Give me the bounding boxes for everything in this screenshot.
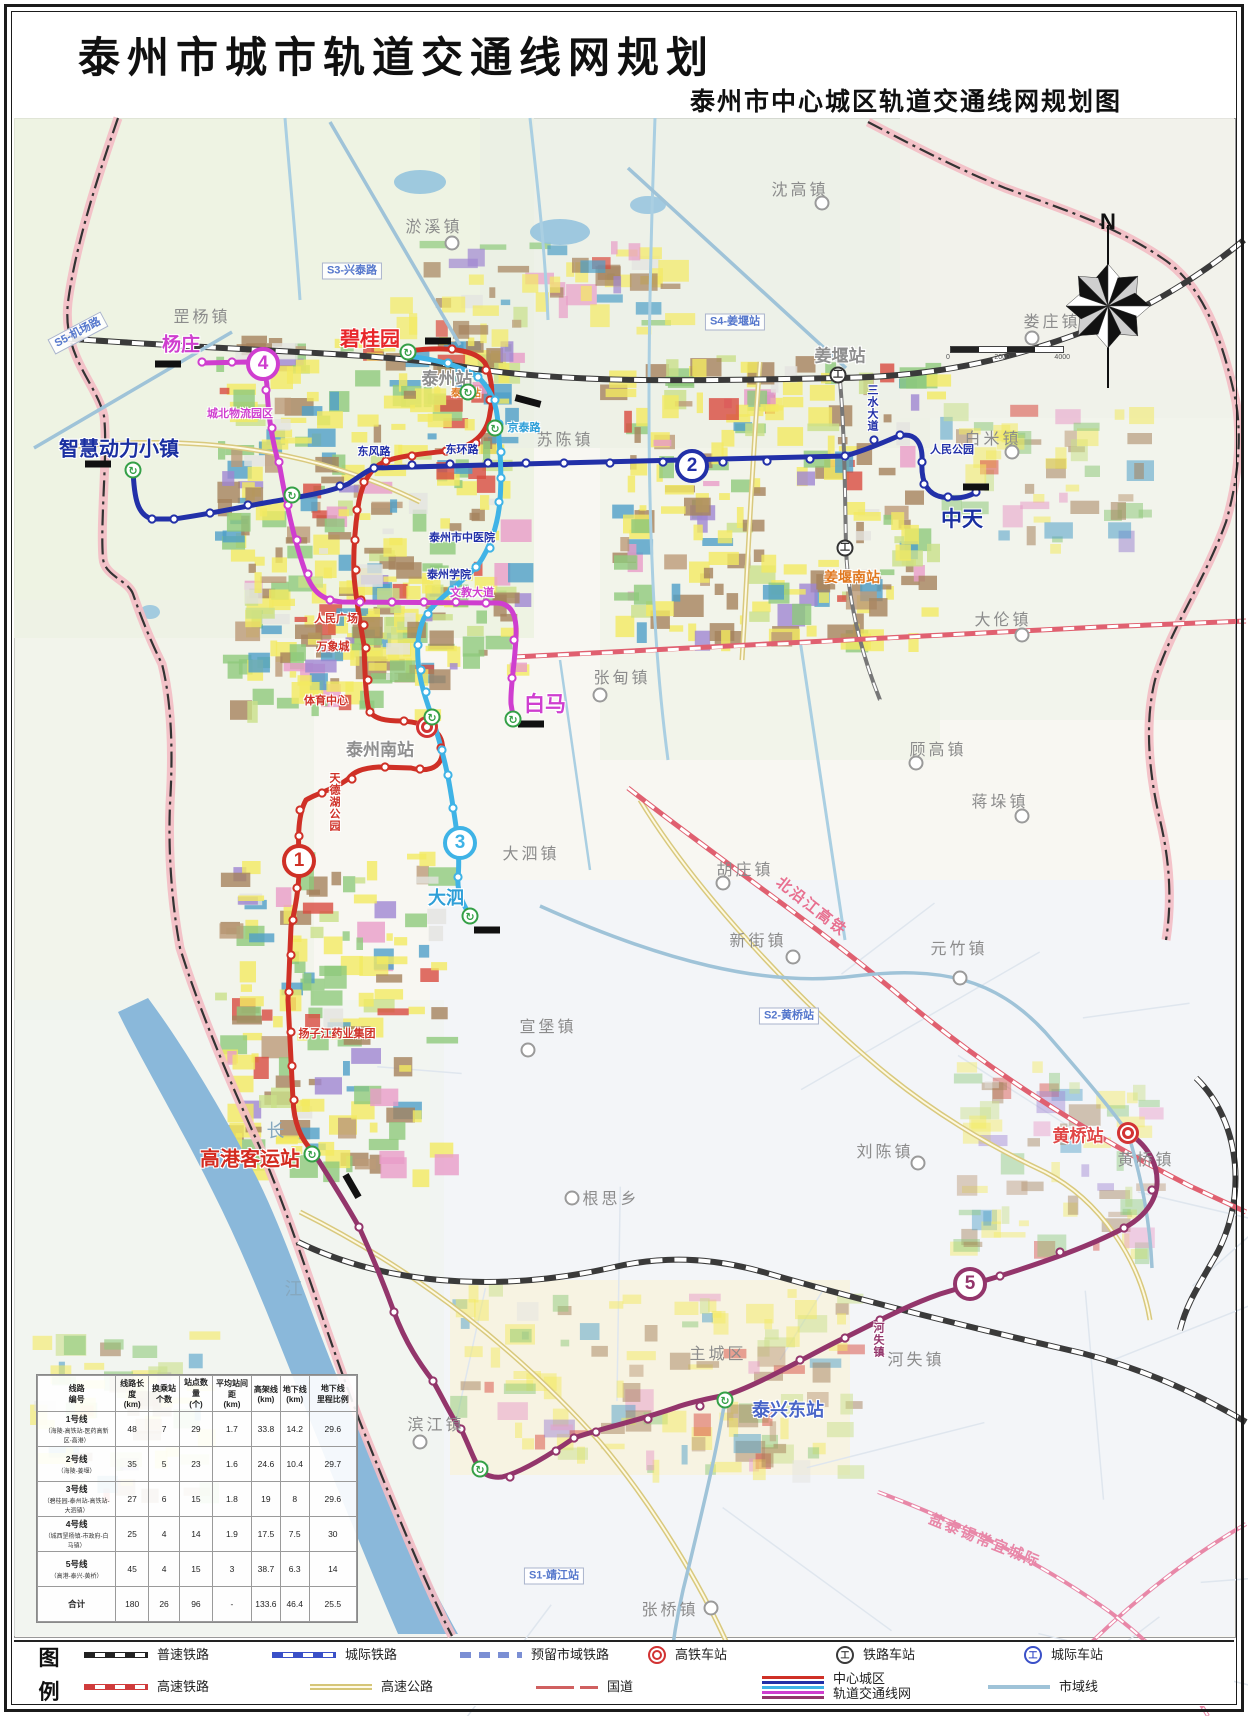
terminal-label: 智慧动力小镇 (59, 433, 179, 462)
value-cell: 180 (116, 1587, 149, 1622)
value-cell: 4 (149, 1552, 180, 1587)
legend-label: 城际车站 (1051, 1648, 1103, 1663)
station-dot (352, 566, 359, 573)
station-dot (491, 396, 498, 403)
legend-row-1: 普速铁路城际铁路预留市域铁路高铁车站工铁路车站工城际车站 (84, 1646, 1234, 1664)
table-header-cell: 换乘站个数 (149, 1376, 180, 1412)
station-dot (198, 358, 205, 365)
town-label: 主城区 (689, 1340, 746, 1364)
town-marker (704, 1601, 719, 1616)
station-dot (390, 1308, 397, 1315)
value-cell: 15 (179, 1482, 212, 1517)
town-marker (1025, 331, 1040, 346)
table-row: 5号线（高港-泰兴-黄桥）45415338.76.314 (38, 1552, 357, 1587)
town-label: 黄桥镇 (1117, 1146, 1174, 1170)
terminal-label: 杨庄 (162, 330, 200, 357)
legend-item: 国道 (536, 1680, 762, 1695)
station-dot (420, 598, 427, 605)
legend-item: 普速铁路 (84, 1648, 272, 1663)
table-header-cell: 线路长度(km) (116, 1376, 149, 1412)
town-marker (909, 756, 924, 771)
suburban-line-label: S1-靖江站 (524, 1568, 584, 1585)
station-dot (486, 544, 493, 551)
value-cell: 29 (179, 1412, 212, 1447)
station-label: 文教大道 (450, 584, 494, 600)
legend-label: 铁路车站 (863, 1648, 915, 1663)
station-dot (288, 1062, 295, 1069)
legend-title: 图 例 (14, 1642, 84, 1706)
station-dot (355, 1223, 362, 1230)
station-dot (659, 458, 666, 465)
station-dot (364, 676, 371, 683)
station-label: 体育中心 (304, 692, 348, 708)
legend-label: 高速公路 (381, 1680, 433, 1695)
station-dot (495, 498, 502, 505)
station-label: 东环路 (446, 441, 479, 457)
station-label: 城北物流园区 (207, 405, 273, 421)
legend-label: 城际铁路 (345, 1648, 397, 1663)
town-label: 元竹镇 (930, 935, 987, 959)
table-row: 合计1802696-133.646.425.5 (38, 1587, 357, 1622)
value-cell: 7.5 (280, 1517, 309, 1552)
station-dot (429, 1377, 436, 1384)
town-label: 宣堡镇 (519, 1013, 576, 1037)
legend-label: 中心城区 轨道交通线网 (833, 1672, 911, 1702)
transfer-station-icon: ↻ (462, 908, 479, 925)
legend-item: 工铁路车站 (836, 1646, 1024, 1664)
st-blue-legend-symbol: 工 (1024, 1646, 1042, 1664)
station-label: 京泰路 (508, 419, 541, 435)
line-number-badge: 1 (282, 844, 316, 878)
value-cell: 7 (149, 1412, 180, 1447)
station-dot (348, 775, 355, 782)
terminal-tick (518, 721, 544, 728)
legend-label: 高铁车站 (675, 1648, 727, 1663)
station-dot (422, 688, 429, 695)
town-label: 娄庄镇 (1023, 308, 1080, 332)
value-cell: 26 (149, 1587, 180, 1622)
station-dot (1056, 1248, 1063, 1255)
town-marker (1015, 628, 1030, 643)
terminal-label: 姜堰站 (815, 342, 866, 367)
terminal-tick (425, 338, 451, 345)
station-dot (351, 536, 358, 543)
terminal-label: 中天 (941, 503, 983, 533)
value-cell: 38.7 (252, 1552, 281, 1587)
value-cell: 46.4 (280, 1587, 309, 1622)
town-marker (786, 950, 801, 965)
line-name-cell: 5号线（高港-泰兴-黄桥） (38, 1552, 116, 1587)
table-header-cell: 地下线里程比例 (309, 1376, 356, 1412)
station-dot (1148, 1186, 1155, 1193)
station-label: 人民广场 (314, 610, 358, 626)
station-dot (414, 641, 421, 648)
station-dot (275, 458, 282, 465)
legend-row-2: 高速铁路高速公路国道中心城区 轨道交通线网市域线 (84, 1672, 1234, 1702)
station-dot (381, 763, 388, 770)
line-name-cell: 2号线（海陵-姜堰） (38, 1447, 116, 1482)
terminal-label: 泰兴东站 (752, 1396, 824, 1422)
station-dot (148, 515, 155, 522)
station-dot (920, 480, 927, 487)
value-cell: 8 (280, 1482, 309, 1517)
station-dot (438, 746, 445, 753)
station-dot (360, 478, 367, 485)
rail-black-legend-symbol (84, 1652, 148, 1658)
value-cell: 1.9 (212, 1517, 251, 1552)
terminal-label: 姜堰南站 (824, 567, 880, 587)
town-label: 大泗镇 (502, 840, 559, 864)
road-red-legend-symbol (536, 1686, 598, 1689)
station-dot (644, 1415, 651, 1422)
town-label: 刘陈镇 (856, 1138, 913, 1162)
terminal-label: 白马 (524, 688, 566, 718)
legend-item: 高铁车站 (648, 1646, 836, 1664)
town-marker (953, 971, 968, 986)
station-dot (918, 458, 925, 465)
value-cell: 35 (116, 1447, 149, 1482)
station-dot (170, 515, 177, 522)
legend-item: 城际铁路 (272, 1648, 460, 1663)
terminal-label: 泰州南站 (346, 736, 414, 761)
legend-label: 高速铁路 (157, 1680, 209, 1695)
value-cell: 133.6 (252, 1587, 281, 1622)
station-dot (262, 386, 269, 393)
legend-item: 工城际车站 (1024, 1646, 1212, 1664)
value-cell: 6.3 (280, 1552, 309, 1587)
value-cell: 30 (309, 1517, 356, 1552)
rail-blue-legend-symbol (272, 1652, 336, 1658)
value-cell: 45 (116, 1552, 149, 1587)
station-dot (484, 459, 491, 466)
terminal-tick (963, 484, 989, 491)
station-dot (444, 771, 451, 778)
terminal-tick (85, 461, 111, 468)
town-label: 罡杨镇 (173, 303, 230, 327)
line-statistics-table: 线路编号线路长度(km)换乘站个数站点数量(个)平均站间距(km)高架线(km)… (36, 1374, 358, 1623)
transfer-station-icon: ↻ (472, 1461, 489, 1478)
legend-item: 预留市域铁路 (460, 1648, 648, 1663)
station-dot (287, 951, 294, 958)
station-dot (474, 373, 481, 380)
town-marker (1005, 445, 1020, 460)
station-dot (606, 459, 613, 466)
station-label: 万象城 (317, 638, 350, 654)
station-dot (289, 916, 296, 923)
station-dot (522, 459, 529, 466)
station-dot (285, 988, 292, 995)
scale-tick: 2000 (994, 354, 1010, 361)
value-cell: 23 (179, 1447, 212, 1482)
station-label: 扬子江药业集团 (299, 1025, 376, 1041)
value-cell: 4 (149, 1517, 180, 1552)
river-label: 长 (267, 1117, 288, 1143)
legend-char: 图 (39, 1642, 60, 1672)
value-cell: 14.2 (280, 1412, 309, 1447)
table-row: 2号线（海陵-姜堰）355231.624.610.429.7 (38, 1447, 357, 1482)
legend-item: 市域线 (988, 1680, 1214, 1695)
transfer-station-icon: ↻ (487, 420, 504, 437)
transfer-station-icon: ↻ (125, 462, 142, 479)
station-dot (696, 1402, 703, 1409)
station-dot (360, 621, 367, 628)
value-cell: 29.6 (309, 1482, 356, 1517)
value-cell: 5 (149, 1447, 180, 1482)
station-dot (362, 644, 369, 651)
station-label: 河失镇 (870, 1322, 886, 1358)
town-marker (413, 1435, 428, 1450)
transfer-station-icon: ↻ (304, 1146, 321, 1163)
legend-label: 普速铁路 (157, 1648, 209, 1663)
station-dot (400, 717, 407, 724)
suburban-line-label: S3-兴泰路 (322, 263, 382, 280)
terminal-label: 碧桂园 (340, 323, 400, 352)
table-header-cell: 地下线(km) (280, 1376, 309, 1412)
scale-tick: 4000 (1054, 354, 1070, 361)
town-label: 张桥镇 (641, 1596, 698, 1620)
station-dot (304, 570, 311, 577)
line-lblue-legend-symbol (988, 1685, 1050, 1689)
value-cell: 3 (212, 1552, 251, 1587)
station-dot (268, 424, 275, 431)
terminal-label: 高港客运站 (200, 1143, 300, 1172)
station-dot (206, 509, 213, 516)
station-dot (448, 345, 455, 352)
transfer-station-icon: ↻ (505, 711, 522, 728)
station-dot (592, 1428, 599, 1435)
station-dot (408, 452, 415, 459)
station-dot (287, 1028, 294, 1035)
value-cell: 33.8 (252, 1412, 281, 1447)
town-marker (521, 1043, 536, 1058)
town-label: 大伦镇 (974, 606, 1031, 630)
station-dot (293, 536, 300, 543)
suburban-line-label: S2-黄桥站 (759, 1008, 819, 1025)
table-row: 4号线（城西罡杨镇-市政府-白马镇）254141.917.57.530 (38, 1517, 357, 1552)
transfer-station-icon: ↻ (424, 709, 441, 726)
legend-label: 预留市域铁路 (531, 1648, 609, 1663)
table-header-cell: 站点数量(个) (179, 1376, 212, 1412)
town-label: 滨江镇 (407, 1411, 464, 1435)
station-dot (806, 455, 813, 462)
station-dot (449, 804, 456, 811)
station-dot (366, 708, 373, 715)
station-dot (244, 501, 251, 508)
town-marker (815, 196, 830, 211)
value-cell: 29.7 (309, 1447, 356, 1482)
town-marker (565, 1191, 580, 1206)
station-dot (944, 493, 951, 500)
town-marker (445, 236, 460, 251)
line-name-cell: 合计 (38, 1587, 116, 1622)
station-dot (370, 464, 377, 471)
town-marker (593, 688, 608, 703)
value-cell: - (212, 1587, 251, 1622)
station-dot (497, 474, 504, 481)
station-dot (482, 366, 489, 373)
line-name-cell: 1号线（海陵-高铁站-医药高新区-高港） (38, 1412, 116, 1447)
station-dot (719, 458, 726, 465)
value-cell: 14 (179, 1517, 212, 1552)
value-cell: 17.5 (252, 1517, 281, 1552)
station-dot (336, 482, 343, 489)
line-name-cell: 4号线（城西罡杨镇-市政府-白马镇） (38, 1517, 116, 1552)
station-dot (570, 1434, 577, 1441)
town-label: 根思乡 (582, 1185, 639, 1209)
value-cell: 1.6 (212, 1447, 251, 1482)
station-dot (472, 563, 479, 570)
station-dot (996, 1272, 1003, 1279)
table-header-cell: 线路编号 (38, 1376, 116, 1412)
station-dot (560, 459, 567, 466)
compass-north-label: N (1100, 209, 1116, 235)
station-dot (506, 1473, 513, 1480)
value-cell: 1.7 (212, 1412, 251, 1447)
value-cell: 14 (309, 1552, 356, 1587)
line-number-badge: 5 (953, 1267, 987, 1301)
value-cell: 27 (116, 1482, 149, 1517)
station-dot (353, 506, 360, 513)
terminal-tick (474, 927, 500, 934)
town-label: 苏陈镇 (536, 426, 593, 450)
value-cell: 1.8 (212, 1482, 251, 1517)
station-dot (841, 1334, 848, 1341)
station-label: 天德湖公园 (326, 772, 342, 832)
town-label: 新街镇 (729, 927, 786, 951)
station-dot (870, 436, 877, 443)
value-cell: 29.6 (309, 1412, 356, 1447)
station-dot (1120, 1224, 1127, 1231)
station-dot (290, 1096, 297, 1103)
town-label: 河失镇 (887, 1346, 944, 1370)
transfer-station-icon: ↻ (717, 1392, 734, 1409)
legend-label: 市域线 (1059, 1680, 1098, 1695)
station-dot (796, 1356, 803, 1363)
station-dot (228, 358, 235, 365)
station-label: 人民公园 (930, 441, 974, 457)
station-dot (896, 431, 903, 438)
line-number-badge: 2 (675, 449, 709, 483)
value-cell: 15 (179, 1552, 212, 1587)
town-label: 淤溪镇 (405, 213, 462, 237)
station-dot (326, 596, 333, 603)
station-dot (295, 832, 302, 839)
town-marker (1015, 809, 1030, 824)
value-cell: 48 (116, 1412, 149, 1447)
value-cell: 19 (252, 1482, 281, 1517)
table-header-cell: 平均站间距(km) (212, 1376, 251, 1412)
town-marker (716, 876, 731, 891)
road-yellow-legend-symbol (310, 1684, 372, 1690)
station-dot (318, 789, 325, 796)
scale-tick-labels: 0 2000 4000 (946, 354, 1070, 361)
station-dot (552, 1447, 559, 1454)
station-dot (497, 448, 504, 455)
station-dot (424, 610, 431, 617)
station-label: 泰州学院 (427, 566, 471, 582)
station-dot (408, 461, 415, 468)
line-number-badge: 4 (246, 347, 280, 381)
station-dot (388, 598, 395, 605)
river-label: 江 (285, 1275, 306, 1301)
table-header-cell: 高架线(km) (252, 1376, 281, 1412)
station-dot (841, 452, 848, 459)
value-cell: 25 (116, 1517, 149, 1552)
station-dot (416, 765, 423, 772)
transfer-station-icon: ↻ (400, 344, 417, 361)
station-dot (356, 598, 363, 605)
dash-blue-legend-symbol (460, 1652, 522, 1658)
hsr-station-icon (1117, 1122, 1139, 1144)
legend-item: 高速公路 (310, 1680, 536, 1695)
station-dot (508, 674, 515, 681)
legend-item: 高速铁路 (84, 1680, 310, 1695)
value-cell: 25.5 (309, 1587, 356, 1622)
terminal-tick (155, 361, 181, 368)
terminal-label: 黄桥站 (1053, 1122, 1104, 1147)
scale-bar (950, 346, 1064, 353)
station-dot (446, 460, 453, 467)
station-label: 三水大道 (864, 384, 880, 432)
line-name-cell: 3号线（碧桂园-泰州站-高铁站-大泗镇） (38, 1482, 116, 1517)
station-label: 泰州市中医院 (429, 529, 495, 545)
scale-tick: 0 (946, 354, 950, 361)
line-number-badge: 3 (443, 826, 477, 860)
transfer-station-icon: ↻ (284, 487, 301, 504)
st-red-legend-symbol (648, 1646, 666, 1664)
map-document: 罡杨镇淤溪镇沈高镇娄庄镇白米镇苏陈镇大伦镇张甸镇顾高镇蒋垛镇大泗镇胡庄镇新街镇元… (0, 0, 1248, 1716)
station-dot (296, 806, 303, 813)
station-dot (510, 636, 517, 643)
transfer-station-icon: ↻ (460, 384, 477, 401)
value-cell: 6 (149, 1482, 180, 1517)
station-dot (454, 873, 461, 880)
st-dark-legend-symbol: 工 (836, 1646, 854, 1664)
metro-multi-legend-symbol (762, 1676, 824, 1699)
map-legend: 图 例 普速铁路城际铁路预留市域铁路高铁车站工铁路车站工城际车站 高速铁路高速公… (14, 1640, 1234, 1706)
station-label: 东风路 (358, 443, 391, 459)
terminal-label: 大泗 (428, 884, 464, 910)
table-row: 3号线（碧桂园-泰州站-高铁站-大泗镇）276151.819829.6 (38, 1482, 357, 1517)
value-cell: 24.6 (252, 1447, 281, 1482)
town-marker (911, 1156, 926, 1171)
railway-station-icon: 工 (830, 367, 847, 384)
rail-red-legend-symbol (84, 1684, 148, 1690)
station-dot (763, 457, 770, 464)
town-label: 张甸镇 (593, 664, 650, 688)
value-cell: 96 (179, 1587, 212, 1622)
railway-station-icon: 工 (837, 540, 854, 557)
legend-char: 例 (39, 1676, 60, 1706)
table-row: 1号线（海陵-高铁站-医药高新区-高港）487291.733.814.229.6 (38, 1412, 357, 1447)
station-dot (417, 666, 424, 673)
value-cell: 10.4 (280, 1447, 309, 1482)
legend-item: 中心城区 轨道交通线网 (762, 1672, 988, 1702)
suburban-line-label: S4-姜堰站 (705, 314, 765, 331)
legend-label: 国道 (607, 1680, 633, 1695)
station-dot (293, 884, 300, 891)
station-dot (482, 599, 489, 606)
